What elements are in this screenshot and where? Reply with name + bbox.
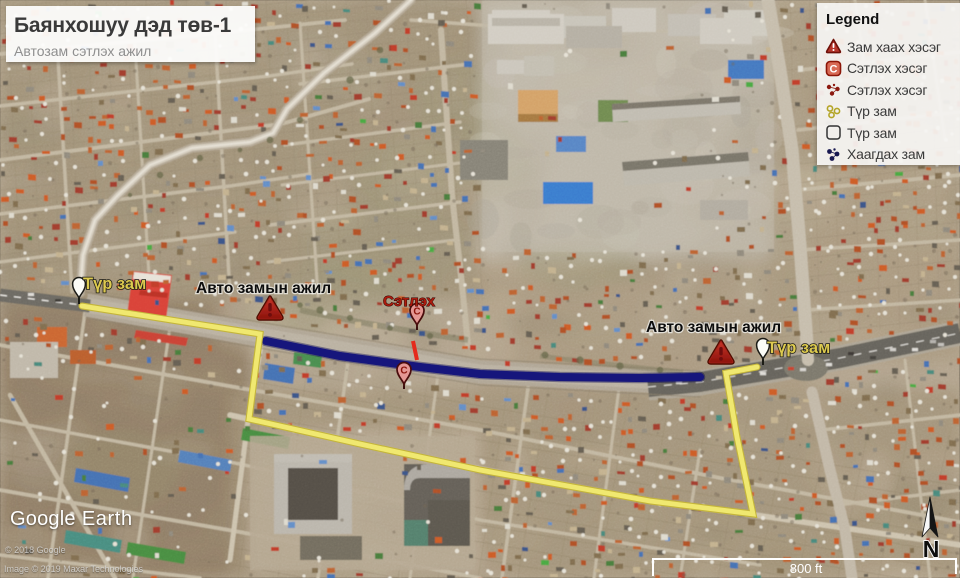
svg-text:C: C xyxy=(400,366,407,377)
svg-text:Авто замын ажил: Авто замын ажил xyxy=(646,319,781,336)
svg-text:800 ft: 800 ft xyxy=(790,561,823,576)
svg-text:N: N xyxy=(923,536,940,562)
svg-text:Түр зам: Түр зам xyxy=(767,339,830,357)
svg-text:C: C xyxy=(830,63,838,75)
svg-text:Авто замын ажил: Авто замын ажил xyxy=(196,280,331,297)
svg-text:Түр зам: Түр зам xyxy=(83,275,146,293)
svg-text:Сэтлэх: Сэтлэх xyxy=(383,293,436,310)
